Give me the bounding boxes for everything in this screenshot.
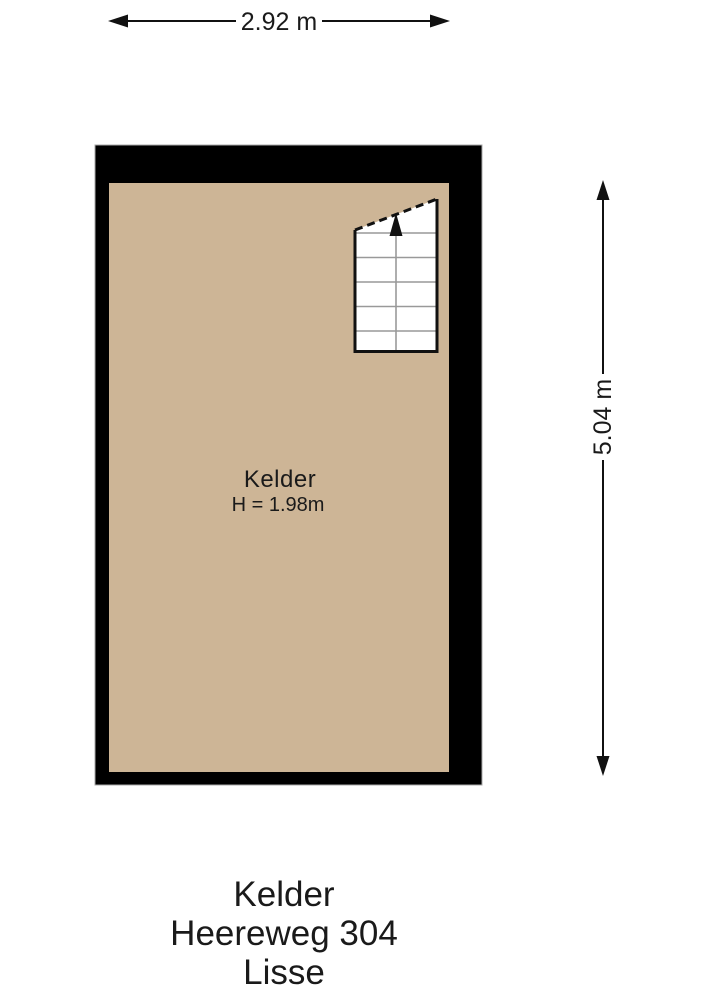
floorplan-drawing: 2.92 m 5.04 m [0,0,707,1000]
width-dimension-label: 2.92 m [241,8,317,36]
caption-city: Lisse [243,953,325,992]
floorplan-page: 2.92 m 5.04 m [0,0,707,1000]
height-dimension-label: 5.04 m [589,379,617,455]
room-name-label: Kelder [244,466,316,493]
right-arrowhead-icon [430,15,450,28]
left-arrowhead-icon [108,15,128,28]
caption-room-name: Kelder [233,875,335,914]
caption-address: Heereweg 304 [170,914,398,953]
height-dimension-line [597,180,610,776]
ceiling-height-label: H = 1.98m [232,494,325,516]
caption: Kelder Heereweg 304 Lisse [170,875,398,992]
down-arrowhead-icon [597,756,610,776]
up-arrowhead-icon [597,180,610,200]
